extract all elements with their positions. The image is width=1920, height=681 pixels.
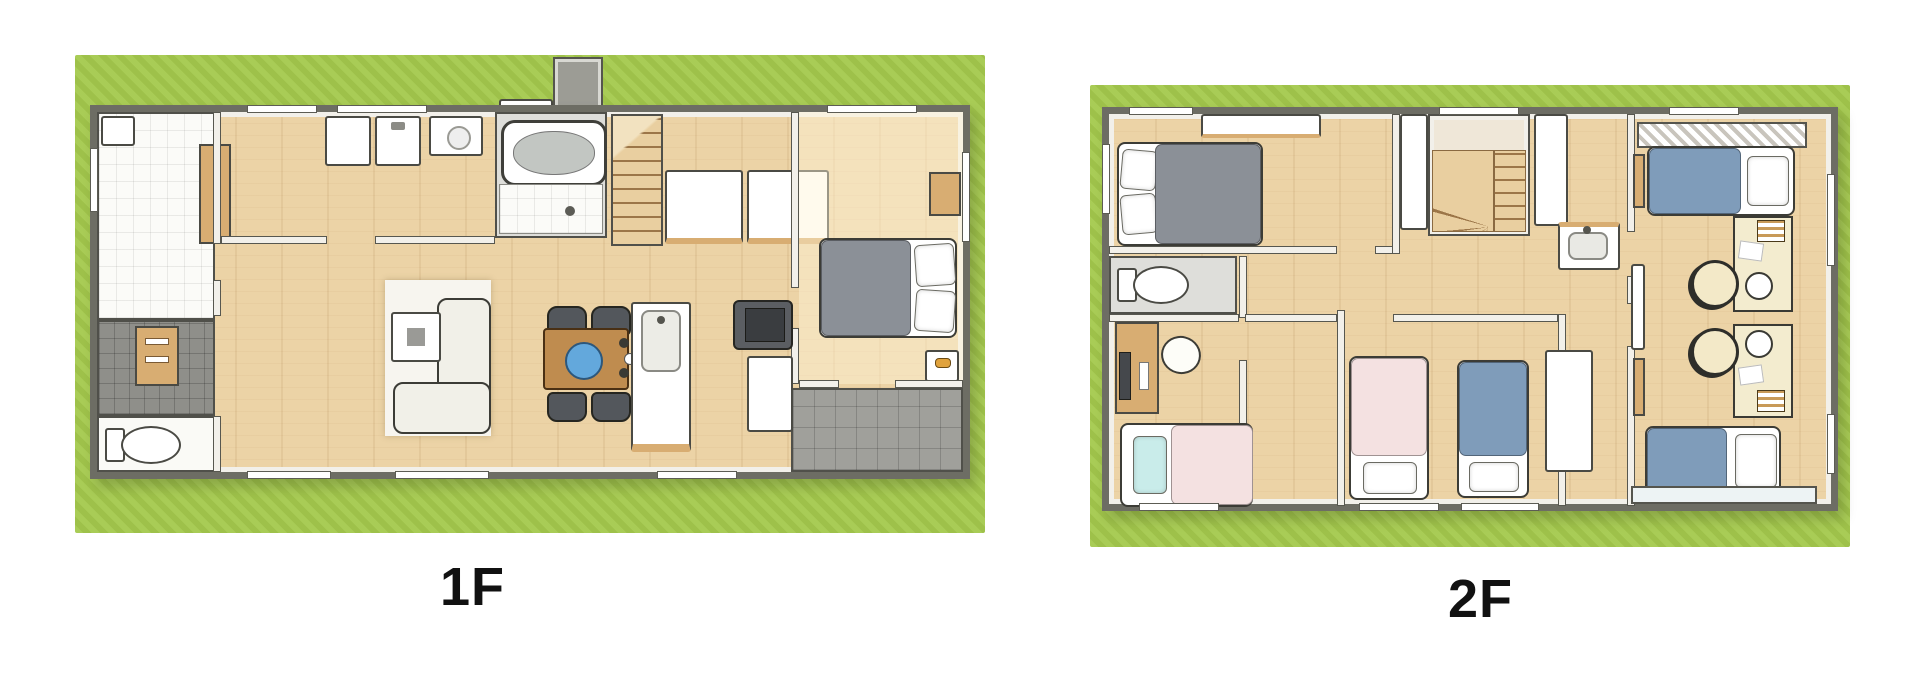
closet-middle	[1545, 350, 1593, 472]
window-2f-top-b	[1439, 107, 1519, 115]
toilet-1f	[121, 426, 181, 464]
kids-chair-b	[1691, 328, 1739, 376]
wall-washroom-b	[213, 280, 221, 316]
desk-paper-b	[1738, 364, 1764, 385]
stairs-2f-run	[1494, 150, 1526, 232]
hall-closet-2f-b	[1534, 114, 1568, 226]
bathtub	[501, 120, 607, 186]
sofa-chaise-seat	[393, 382, 491, 434]
window-1f-bottom-c	[657, 471, 737, 479]
porch-canopy	[553, 57, 603, 110]
study-chair	[1157, 332, 1205, 379]
wall-midroom-north	[1393, 314, 1558, 322]
desk-lamp-b	[1745, 330, 1773, 358]
washbasin-bowl	[1568, 232, 1608, 260]
double-bed-1f-pillow-a	[914, 243, 957, 288]
nightstand-item	[935, 358, 951, 368]
window-2f-bottom-c	[1461, 503, 1539, 511]
laundry-counter	[101, 116, 135, 146]
single-bed-blue-b-pillow	[1747, 156, 1789, 206]
single-bed-blue-b-duvet	[1649, 148, 1741, 214]
window-1f-top-c	[827, 105, 917, 113]
single-bed-pink-a-pillow	[1133, 436, 1167, 494]
desk-keyboard	[1139, 362, 1149, 390]
coffee-table-tray	[407, 328, 425, 346]
toilet-2f	[1133, 266, 1189, 304]
single-bed-blue-a-pillow	[1469, 462, 1519, 492]
single-bed-pink-a-duvet	[1171, 425, 1253, 505]
stairs-2f-winders	[1432, 150, 1494, 232]
shower-faucet	[565, 206, 575, 216]
table-dish-c	[619, 368, 629, 378]
window-2f-bottom-b	[1359, 503, 1439, 511]
void-hatched-area	[1637, 122, 1807, 148]
window-1f-right	[962, 152, 970, 242]
double-bed-2f-duvet	[1155, 144, 1261, 244]
floor-2f-plan	[1090, 85, 1850, 547]
hall-closet-a	[665, 170, 743, 244]
label-2f: 2F	[1448, 568, 1513, 630]
wall-study-east-a	[1239, 256, 1247, 318]
floor-1f-plan	[75, 55, 985, 533]
refrigerator	[325, 116, 371, 166]
master-closet	[1201, 114, 1321, 138]
desk-monitor	[1119, 352, 1131, 400]
bookshelf-c	[1633, 358, 1645, 416]
dining-chair-3	[547, 392, 587, 422]
wall-master-east	[1392, 114, 1400, 254]
double-bed-1f-duvet	[821, 240, 911, 336]
tv-screen	[745, 308, 785, 342]
wall-kitchen-a	[221, 236, 327, 244]
window-2f-top-a	[1129, 107, 1193, 115]
terrace-1f	[791, 388, 963, 472]
single-bed-blue-c-pillow	[1735, 434, 1777, 488]
single-bed-pink-b-duvet	[1351, 358, 1427, 456]
wall-bedroom-a	[791, 112, 799, 288]
window-1f-left	[90, 148, 98, 212]
wall-bedroom-south-a	[799, 380, 839, 388]
storage-cabinet	[747, 356, 793, 432]
wall-hall-south	[1245, 314, 1337, 322]
desk-paper-a	[1738, 240, 1764, 261]
stairs-1f	[611, 114, 663, 246]
double-bed-2f-pillow-a	[1119, 149, 1158, 192]
shower-area	[499, 184, 603, 234]
bathtub-basin	[513, 131, 595, 175]
bookshelf-a	[1633, 154, 1645, 208]
bookshelf-b	[1631, 264, 1645, 350]
wall-bedroom-south-b	[895, 380, 963, 388]
washing-machine-door	[447, 126, 471, 150]
wall-midroom-west	[1337, 310, 1345, 506]
window-1f-bottom-a	[247, 471, 331, 479]
label-1f: 1F	[440, 556, 505, 618]
wall-master-south-a	[1109, 246, 1337, 254]
balcony-door-2f	[1827, 174, 1835, 266]
shoe-shelf-slot-a	[145, 338, 169, 345]
window-1f-top-a	[247, 105, 317, 113]
wall-washroom-a	[213, 112, 221, 244]
dining-chair-4	[591, 392, 631, 422]
book-stack-b	[1757, 390, 1785, 412]
window-2f-right	[1827, 414, 1835, 474]
island-faucet	[657, 316, 665, 324]
washbasin-faucet	[1583, 226, 1591, 234]
house-2f	[1102, 107, 1838, 511]
double-bed-2f-pillow-b	[1119, 193, 1158, 236]
kids-chair-a	[1691, 260, 1739, 308]
double-bed-1f-pillow-b	[914, 289, 957, 334]
single-bed-pink-b-pillow	[1363, 462, 1417, 494]
house-1f	[90, 105, 970, 479]
shoe-shelf-slot-b	[145, 356, 169, 363]
wall-toilet-1f	[213, 416, 221, 472]
book-stack-a	[1757, 220, 1785, 242]
table-dish-a	[619, 338, 629, 348]
window-2f-top-c	[1669, 107, 1739, 115]
table-plate-blue	[565, 342, 603, 380]
window-1f-top-b	[337, 105, 427, 113]
stairs-slope	[613, 116, 661, 158]
wall-toilet-south	[1109, 314, 1239, 322]
single-bed-blue-a-duvet	[1459, 362, 1527, 456]
kitchen-faucet	[391, 122, 405, 130]
window-2f-left	[1102, 144, 1110, 214]
window-2f-bottom-a	[1139, 503, 1219, 511]
wall-kitchen-b	[375, 236, 495, 244]
balcony-2f	[1631, 486, 1817, 504]
desk-lamp-a	[1745, 272, 1773, 300]
hall-closet-2f-a	[1400, 114, 1428, 230]
wall-shelf	[929, 172, 961, 216]
window-1f-bottom-b	[395, 471, 489, 479]
